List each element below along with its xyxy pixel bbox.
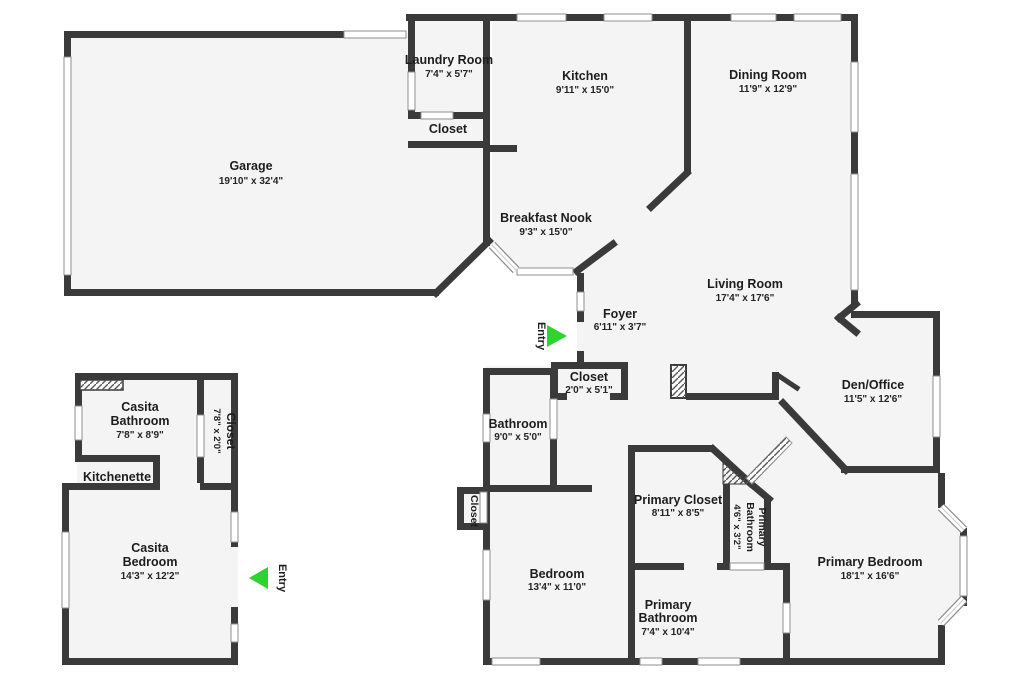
window [517, 14, 566, 21]
wall-segment [64, 289, 439, 296]
door [197, 415, 204, 457]
wall-segment [483, 368, 557, 375]
primary-bath-dims: 7'4" x 10'4" [641, 627, 694, 638]
window [75, 406, 82, 440]
wall-segment [77, 373, 238, 380]
wall-segment [841, 466, 940, 473]
window [62, 532, 69, 608]
window [640, 658, 662, 665]
door [480, 492, 487, 523]
nook-name: Breakfast Nook [500, 211, 592, 225]
window [231, 624, 238, 642]
window [231, 512, 238, 542]
wall-segment [577, 273, 584, 369]
wall-segment [75, 455, 160, 462]
bedroom-name: Bedroom [530, 567, 585, 581]
floorplan-page: Garage 19'10" x 32'4" Laundry Room 7'4" … [0, 0, 1024, 683]
window [483, 550, 490, 600]
window [344, 31, 406, 38]
wall-segment [487, 145, 517, 152]
wall-segment [408, 141, 490, 148]
fireplace-hatch [671, 365, 686, 398]
primary-bath-small-dims: 4'6" x 3'2" [731, 504, 742, 549]
laundry-dims: 7'4" x 5'7" [425, 69, 473, 80]
foyer-dims: 6'11" x 3'7" [594, 322, 647, 333]
laundry-closet-name: Closet [429, 122, 468, 136]
laundry-name: Laundry Room [405, 53, 493, 67]
wall-segment [723, 484, 730, 570]
den-name: Den/Office [842, 378, 905, 392]
doorway-opening [684, 563, 717, 570]
door [783, 603, 790, 633]
primary-closet-dims: 8'11" x 8'5" [652, 508, 705, 519]
casita-bedroom-name-2: Bedroom [123, 555, 178, 569]
garage-door [64, 57, 71, 275]
wall-segment [938, 625, 945, 665]
primary-bath-small-name-2: Bathroom [744, 502, 756, 552]
window [960, 536, 967, 596]
nook-dims: 9'3" x 15'0" [519, 227, 572, 238]
door [577, 292, 584, 311]
foyer-name: Foyer [603, 307, 637, 321]
casita-bedroom-name-1: Casita [131, 541, 170, 555]
living-name: Living Room [707, 277, 783, 291]
garage-dims: 19'10" x 32'4" [219, 176, 284, 187]
casita-bath-name-1: Casita [121, 400, 160, 414]
casita-bath-dims: 7'8" x 8'9" [116, 430, 164, 441]
primary-closet-name: Primary Closet [634, 493, 723, 507]
window [517, 268, 573, 275]
window [408, 72, 415, 110]
dining-dims: 11'9" x 12'9" [739, 84, 797, 95]
window [731, 14, 776, 21]
entry-arrow-icon [547, 325, 567, 347]
window [492, 658, 540, 665]
window [851, 62, 858, 132]
wall-segment [628, 445, 635, 665]
window [933, 376, 940, 437]
floorplan-canvas: Garage 19'10" x 32'4" Laundry Room 7'4" … [0, 0, 1024, 683]
primary-bath-name-2: Bathroom [638, 611, 697, 625]
door [550, 399, 557, 439]
doorway-opening [160, 483, 200, 490]
primary-bedroom-name: Primary Bedroom [818, 555, 923, 569]
doorway-opening [577, 322, 584, 351]
doorway-opening [592, 485, 628, 492]
doorway-opening [231, 547, 238, 607]
casita-entry-label: Entry [276, 564, 288, 593]
entry-arrow-icon [249, 567, 268, 589]
kitchen-dims: 9'11" x 15'0" [556, 85, 614, 96]
wall-segment [684, 14, 691, 174]
wall-segment [938, 473, 945, 508]
window [794, 14, 841, 21]
wall-segment [483, 14, 490, 246]
casita-closet-dims: 7'8" x 2'0" [211, 408, 222, 453]
wall-segment [628, 445, 714, 452]
kitchen-name: Kitchen [562, 69, 608, 83]
glass-panel [730, 563, 764, 570]
dining-name: Dining Room [729, 68, 807, 82]
window [604, 14, 652, 21]
living-dims: 17'4" x 17'6" [716, 293, 775, 304]
casita-shower-hatch [80, 380, 123, 390]
bathroom-name: Bathroom [488, 417, 547, 431]
casita-bath-name-2: Bathroom [110, 414, 169, 428]
kitchenette-name: Kitchenette [83, 470, 151, 484]
wall-segment [851, 311, 940, 318]
wall-segment [62, 658, 238, 665]
wall-segment [686, 393, 776, 400]
primary-bedroom-dims: 18'1" x 16'6" [841, 571, 900, 582]
window [851, 174, 858, 290]
primary-bath-name-1: Primary [645, 598, 692, 612]
wall-segment [62, 483, 238, 490]
casita-bedroom-dims: 14'3" x 12'2" [121, 571, 180, 582]
casita-closet-name: Closet [224, 413, 238, 450]
primary-bath-small-name-1: Primary [756, 507, 768, 546]
bathroom-dims: 9'0" x 5'0" [494, 432, 542, 443]
wall-segment [551, 362, 628, 369]
den-dims: 11'5" x 12'6" [844, 394, 902, 405]
window [698, 658, 740, 665]
window [421, 112, 453, 119]
hall-closet-name: Closet [570, 370, 609, 384]
hall-closet-dims: 2'0" x 5'1" [565, 385, 613, 396]
bedroom-closet-name: Closet [468, 495, 480, 528]
main-entry-label: Entry [535, 322, 547, 351]
bedroom-dims: 13'4" x 11'0" [528, 582, 586, 593]
garage-name: Garage [229, 159, 272, 173]
